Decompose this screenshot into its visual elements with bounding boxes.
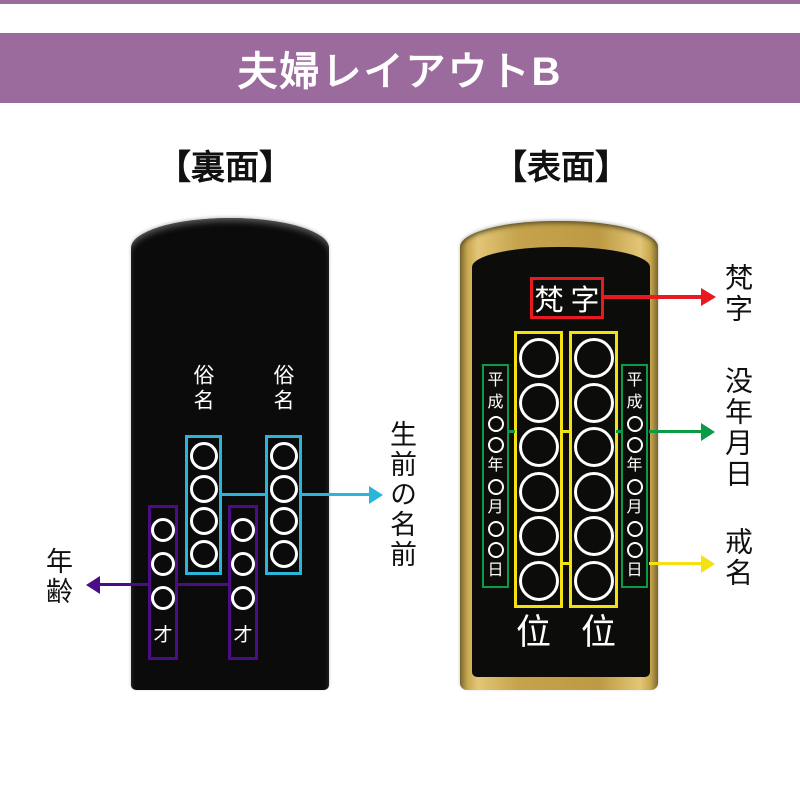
date-char: 月 bbox=[487, 499, 503, 517]
placeholder-circle bbox=[270, 540, 298, 568]
placeholder-circle bbox=[270, 475, 298, 503]
placeholder-circle bbox=[151, 518, 175, 542]
age-suffix-char-1: 才 bbox=[153, 620, 172, 647]
placeholder-circle bbox=[574, 338, 614, 378]
violet-annotation-line bbox=[100, 583, 148, 586]
placeholder-circle bbox=[190, 442, 218, 470]
placeholder-circle bbox=[574, 383, 614, 423]
placeholder-circle bbox=[151, 586, 175, 610]
yellow-arrow-icon bbox=[701, 555, 715, 573]
placeholder-circle bbox=[231, 586, 255, 610]
date-placeholder-circle bbox=[627, 416, 643, 432]
rank-char-row: 位 位 bbox=[516, 604, 616, 655]
date-placeholder-circle bbox=[488, 521, 504, 537]
bonji-box: 梵字 bbox=[530, 277, 604, 319]
page-canvas: 夫婦レイアウトB 【裏面】 【表面】 俗名 俗名 才 才 生前の名前 年齢 梵字… bbox=[0, 0, 800, 800]
kaimyo-box-1 bbox=[514, 331, 563, 608]
date-char: 月 bbox=[626, 499, 642, 517]
red-annotation-line bbox=[604, 295, 701, 299]
placeholder-circle bbox=[190, 507, 218, 535]
age-suffix-char-2: 才 bbox=[233, 620, 252, 647]
death-date-column-2: 平成年月日 bbox=[621, 364, 648, 588]
death-date-column-1: 平成年月日 bbox=[482, 364, 509, 588]
date-char: 日 bbox=[487, 562, 503, 580]
placeholder-circle bbox=[519, 472, 559, 512]
red-arrow-icon bbox=[701, 288, 716, 306]
green-connector-left bbox=[507, 430, 515, 433]
placeholder-circle bbox=[190, 475, 218, 503]
lifetime-name-box-1 bbox=[185, 435, 222, 575]
title-banner: 夫婦レイアウトB bbox=[0, 33, 800, 103]
front-section-heading: 【表面】 bbox=[441, 140, 681, 189]
common-name-label-2: 俗名 bbox=[272, 364, 293, 414]
date-placeholder-circle bbox=[627, 542, 643, 558]
violet-arrow-icon bbox=[86, 576, 100, 594]
placeholder-circle bbox=[151, 552, 175, 576]
placeholder-circle bbox=[231, 518, 255, 542]
lifetime-name-box-2 bbox=[265, 435, 302, 575]
bonji-box-text: 梵字 bbox=[528, 277, 607, 319]
violet-connector-line bbox=[178, 583, 228, 586]
placeholder-circle bbox=[574, 427, 614, 467]
date-char: 年 bbox=[626, 457, 642, 475]
placeholder-circle bbox=[519, 561, 559, 601]
placeholder-circle bbox=[190, 540, 218, 568]
kaimyo-annotation: 戒名 bbox=[722, 527, 750, 589]
age-box-1: 才 bbox=[148, 505, 178, 660]
page-title: 夫婦レイアウトB bbox=[238, 39, 563, 97]
death-date-annotation: 没年月日 bbox=[722, 366, 750, 490]
rank-char-2: 位 bbox=[581, 604, 616, 655]
placeholder-circle bbox=[574, 561, 614, 601]
placeholder-circle bbox=[519, 516, 559, 556]
age-box-2: 才 bbox=[228, 505, 258, 660]
date-char: 年 bbox=[487, 457, 503, 475]
date-placeholder-circle bbox=[488, 437, 504, 453]
green-annotation-line bbox=[649, 430, 701, 433]
date-char: 成 bbox=[626, 394, 642, 412]
top-accent-line bbox=[0, 0, 800, 4]
cyan-arrow-icon bbox=[369, 486, 383, 504]
date-placeholder-circle bbox=[488, 542, 504, 558]
placeholder-circle bbox=[519, 383, 559, 423]
age-annotation: 年齢 bbox=[43, 547, 70, 607]
rank-char-1: 位 bbox=[516, 604, 551, 655]
cyan-annotation-line bbox=[302, 493, 369, 496]
date-char: 平 bbox=[487, 372, 503, 390]
placeholder-circle bbox=[519, 427, 559, 467]
back-section-heading: 【裏面】 bbox=[105, 140, 345, 189]
placeholder-circle bbox=[270, 507, 298, 535]
date-placeholder-circle bbox=[488, 416, 504, 432]
yellow-connector-lower bbox=[561, 562, 571, 565]
date-char: 日 bbox=[626, 562, 642, 580]
date-placeholder-circle bbox=[627, 479, 643, 495]
placeholder-circle bbox=[574, 472, 614, 512]
green-arrow-icon bbox=[701, 423, 715, 441]
yellow-connector-upper bbox=[561, 430, 571, 433]
kaimyo-box-2 bbox=[569, 331, 618, 608]
date-placeholder-circle bbox=[488, 479, 504, 495]
yellow-annotation-line bbox=[649, 562, 701, 565]
placeholder-circle bbox=[519, 338, 559, 378]
common-name-label-1: 俗名 bbox=[192, 364, 213, 414]
date-char: 成 bbox=[487, 394, 503, 412]
placeholder-circle bbox=[270, 442, 298, 470]
date-placeholder-circle bbox=[627, 521, 643, 537]
placeholder-circle bbox=[231, 552, 255, 576]
date-char: 平 bbox=[626, 372, 642, 390]
bonji-annotation: 梵字 bbox=[722, 263, 750, 325]
green-connector-right bbox=[616, 430, 622, 433]
lifetime-name-annotation: 生前の名前 bbox=[387, 420, 414, 570]
date-placeholder-circle bbox=[627, 437, 643, 453]
placeholder-circle bbox=[574, 516, 614, 556]
cyan-connector-line bbox=[222, 493, 265, 496]
